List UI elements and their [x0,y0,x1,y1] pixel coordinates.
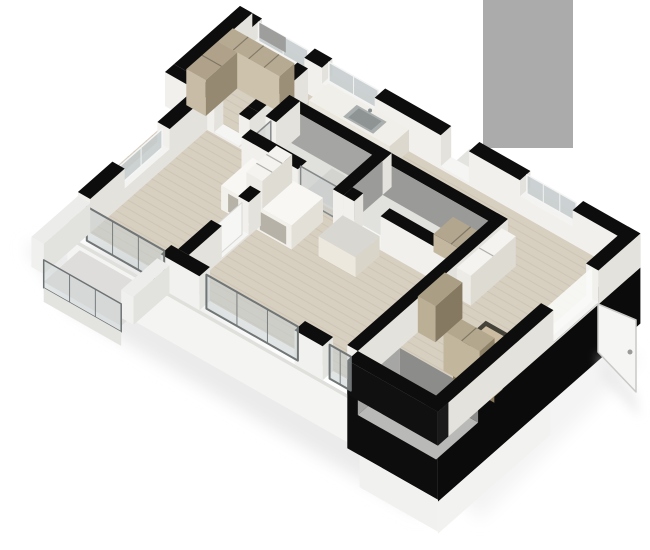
floorplan-3d-render [0,0,650,550]
background-artifact [483,0,573,148]
kitchen-faucet [368,109,372,113]
floorplan-layers [25,0,640,534]
entry-door-handle [628,350,633,355]
floorplan-3d-viewport[interactable] [0,0,650,550]
